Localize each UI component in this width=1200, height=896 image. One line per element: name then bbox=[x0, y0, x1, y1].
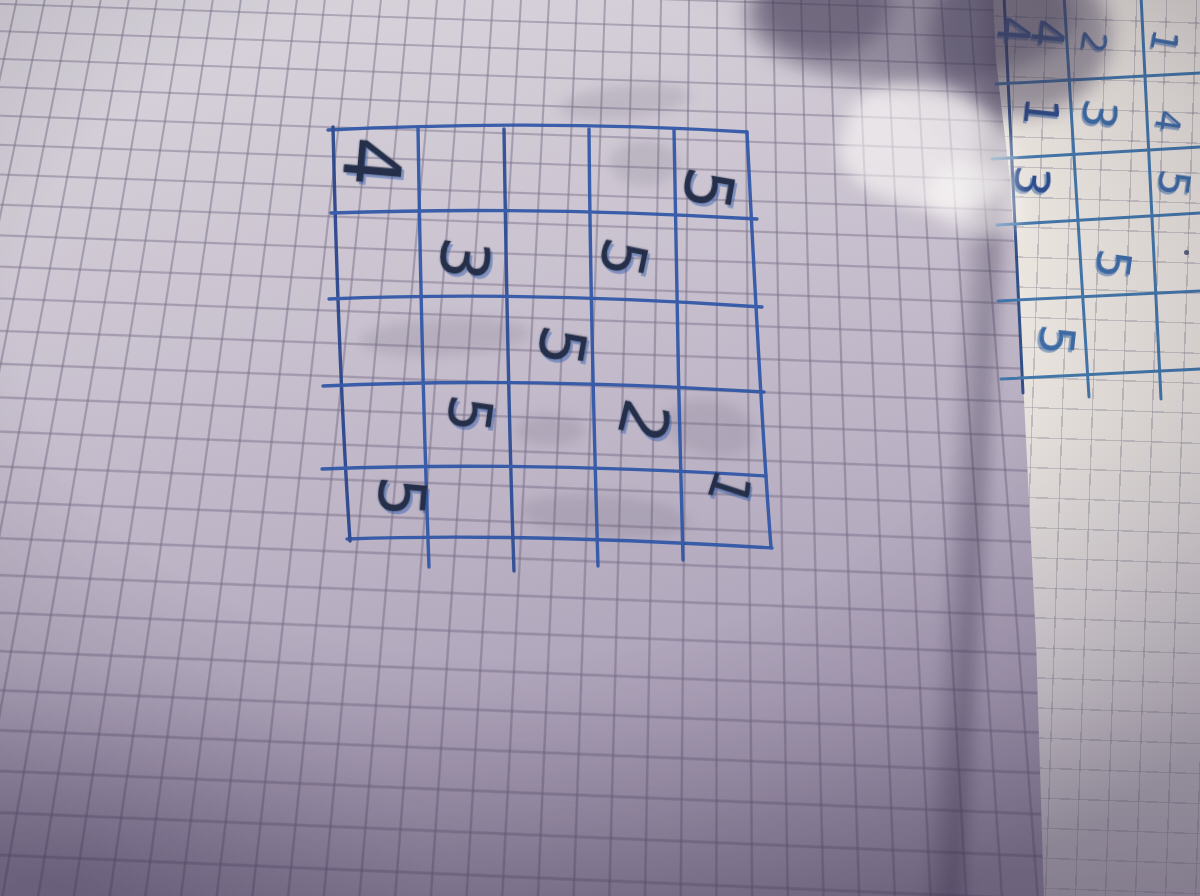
photo-of-squared-paper: 44211343555 453555251 bbox=[0, 0, 1200, 896]
smudge-mark bbox=[610, 140, 680, 186]
stray-pen-dot bbox=[1184, 250, 1189, 255]
smudge-mark bbox=[515, 415, 585, 445]
